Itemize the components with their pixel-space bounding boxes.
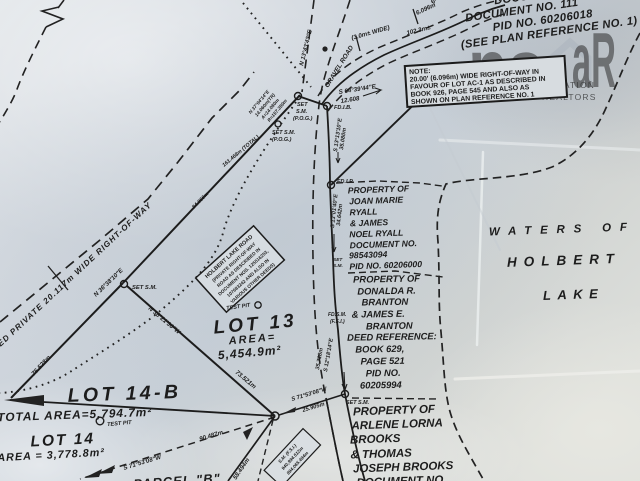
svg-text:(F.S.I.): (F.S.I.) bbox=[330, 319, 345, 325]
svg-text:S.M.: S.M. bbox=[333, 263, 343, 269]
svg-text:LOT 14-B: LOT 14-B bbox=[67, 381, 182, 407]
svg-text:SET: SET bbox=[333, 257, 343, 263]
svg-text:(P.O.G.): (P.O.G.) bbox=[293, 116, 313, 122]
svg-text:& JAMES E.: & JAMES E. bbox=[352, 308, 405, 320]
svg-text:SET: SET bbox=[297, 102, 308, 108]
svg-text:BOOK 629,: BOOK 629, bbox=[355, 343, 404, 355]
svg-text:SET S.M.: SET S.M. bbox=[272, 130, 296, 136]
svg-text:(P.O.G.): (P.O.G.) bbox=[272, 137, 292, 143]
svg-text:S.M.: S.M. bbox=[296, 109, 308, 115]
svg-text:SET S.M.: SET S.M. bbox=[132, 285, 157, 291]
svg-text:98543094: 98543094 bbox=[349, 249, 388, 260]
svg-text:PID NO.: PID NO. bbox=[366, 367, 401, 379]
svg-text:PAGE 521: PAGE 521 bbox=[360, 355, 404, 367]
svg-text:JOAN MARIE: JOAN MARIE bbox=[349, 195, 404, 207]
svg-text:& JAMES: & JAMES bbox=[350, 217, 389, 228]
svg-text:DEED REFERENCE:: DEED REFERENCE: bbox=[347, 330, 437, 343]
svg-text:& THOMAS: & THOMAS bbox=[350, 447, 412, 461]
svg-text:RYALL: RYALL bbox=[349, 206, 377, 217]
svg-text:NOEL RYALL: NOEL RYALL bbox=[349, 228, 403, 240]
svg-text:FD.I.B.: FD.I.B. bbox=[334, 105, 352, 111]
svg-text:FD.S.M.: FD.S.M. bbox=[328, 312, 346, 318]
svg-text:BROOKS: BROOKS bbox=[350, 433, 401, 447]
svg-text:PROPERTY OF: PROPERTY OF bbox=[353, 273, 420, 285]
svg-text:BRANTON: BRANTON bbox=[366, 320, 413, 332]
svg-text:BRANTON: BRANTON bbox=[361, 296, 408, 308]
svg-text:LAKE: LAKE bbox=[543, 286, 605, 303]
svg-text:60205994: 60205994 bbox=[360, 379, 403, 391]
